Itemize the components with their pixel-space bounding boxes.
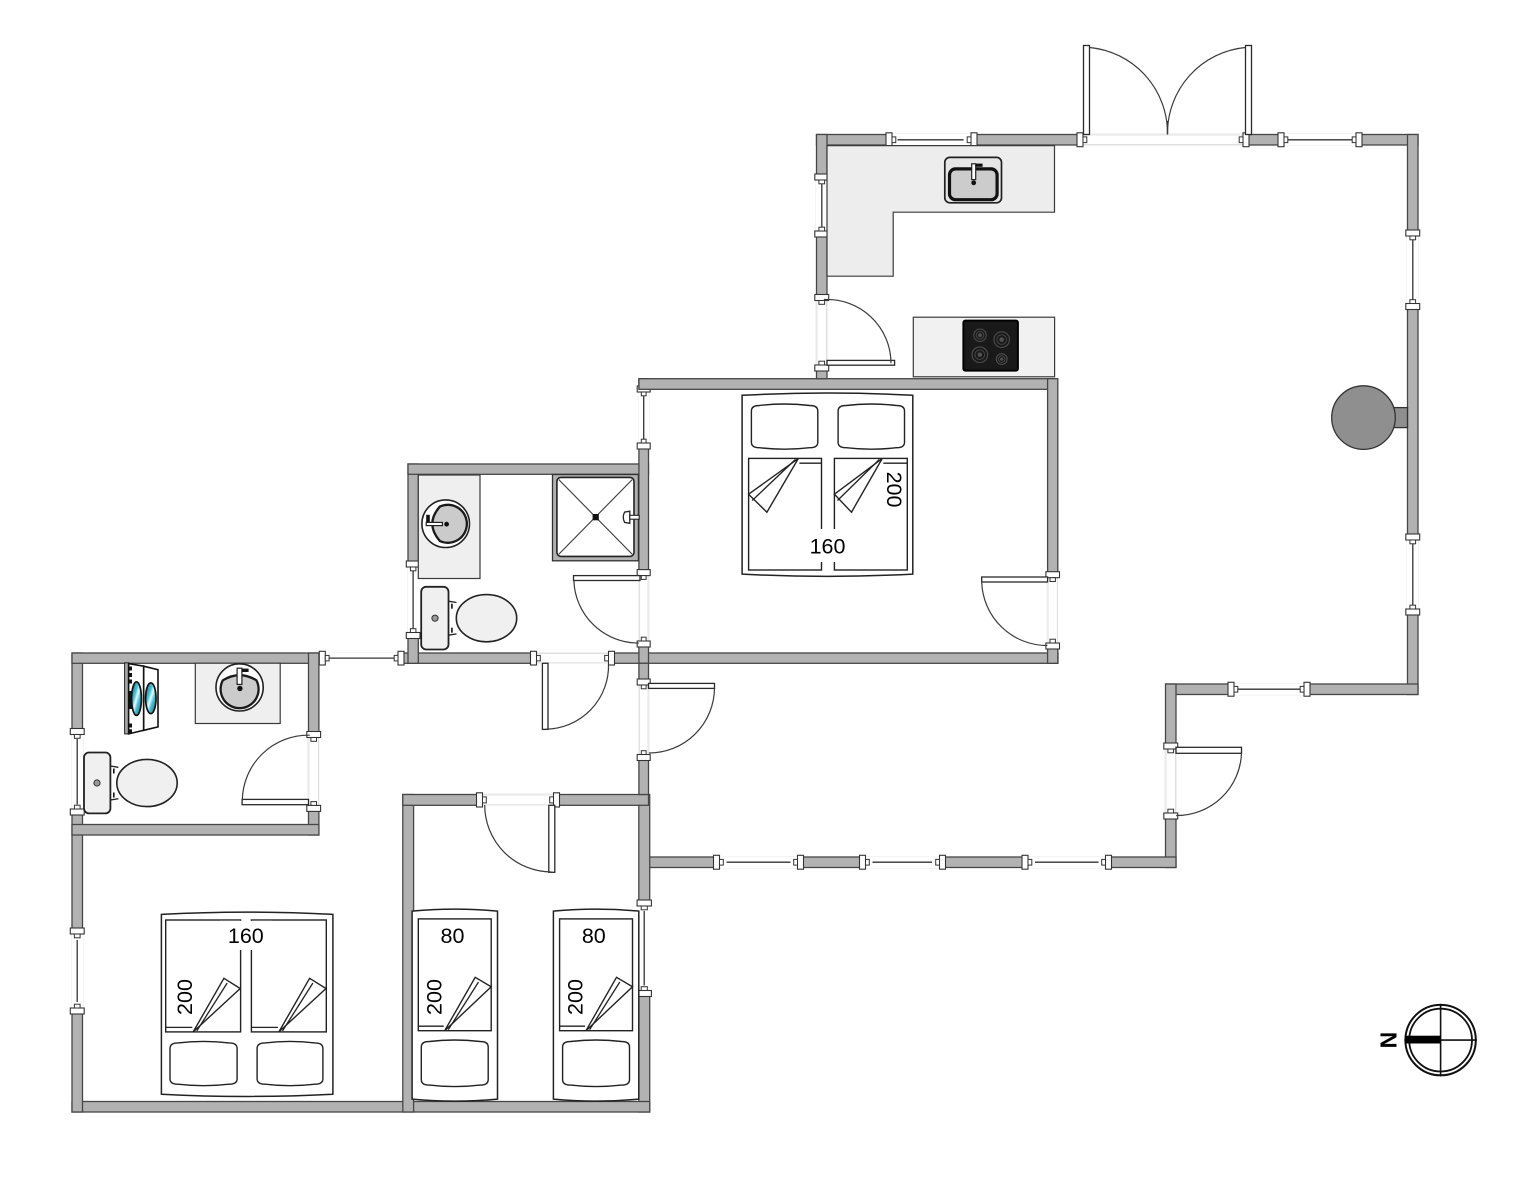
svg-text:200: 200: [173, 979, 197, 1015]
svg-text:200: 200: [564, 979, 588, 1015]
svg-text:80: 80: [441, 924, 465, 948]
svg-text:160: 160: [810, 535, 846, 559]
svg-text:N: N: [1376, 1032, 1402, 1049]
svg-text:160: 160: [228, 924, 264, 948]
svg-text:200: 200: [422, 979, 446, 1015]
svg-text:80: 80: [582, 924, 606, 948]
svg-text:200: 200: [882, 472, 906, 508]
